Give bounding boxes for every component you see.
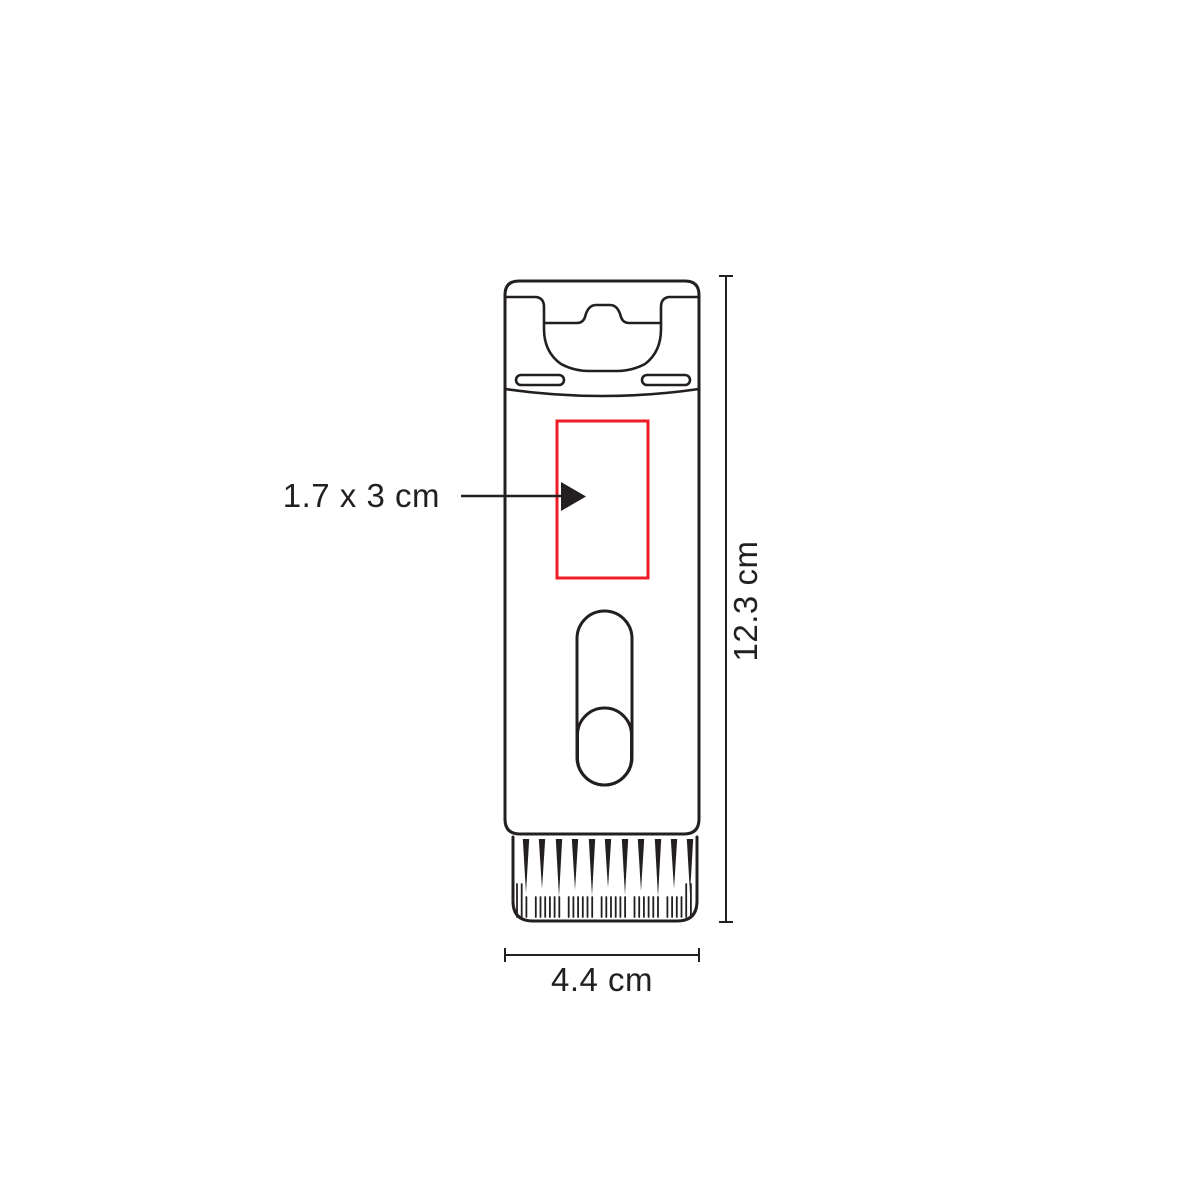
bristle-wedge	[622, 839, 628, 895]
width-dimension-label: 4.4 cm	[551, 961, 653, 998]
device-body-outline	[505, 281, 699, 834]
slider-knob	[578, 708, 632, 785]
height-dimension-label: 12.3 cm	[727, 541, 764, 662]
cap-seam-curve	[505, 389, 699, 396]
bristle-wedge	[655, 839, 661, 897]
brush-bristles-long	[523, 839, 693, 897]
bristle-wedge	[671, 839, 677, 889]
bristle-wedge	[638, 839, 644, 891]
imprint-size-label: 1.7 x 3 cm	[283, 477, 440, 514]
bristle-wedge	[539, 839, 545, 889]
brush-bristles-short	[517, 884, 691, 917]
imprint-callout: 1.7 x 3 cm	[283, 477, 586, 514]
bristle-wedge	[556, 839, 562, 897]
bristle-wedge	[605, 839, 611, 888]
vent-slot-right	[642, 375, 690, 385]
bristle-wedge	[572, 839, 578, 890]
height-dimension: 12.3 cm	[719, 276, 764, 922]
width-dimension: 4.4 cm	[505, 948, 699, 998]
vent-slot-left	[516, 375, 564, 385]
product-drawing	[505, 281, 699, 921]
slider-track	[577, 611, 632, 785]
imprint-arrowhead-icon	[561, 482, 586, 511]
stand-notch-outline	[505, 297, 699, 371]
product-dimension-diagram: 1.7 x 3 cm 12.3 cm 4.4 cm	[0, 0, 1200, 1200]
bristle-wedge	[589, 839, 595, 896]
notch-ledge-bump	[545, 305, 660, 323]
bristle-wedge	[523, 839, 529, 893]
